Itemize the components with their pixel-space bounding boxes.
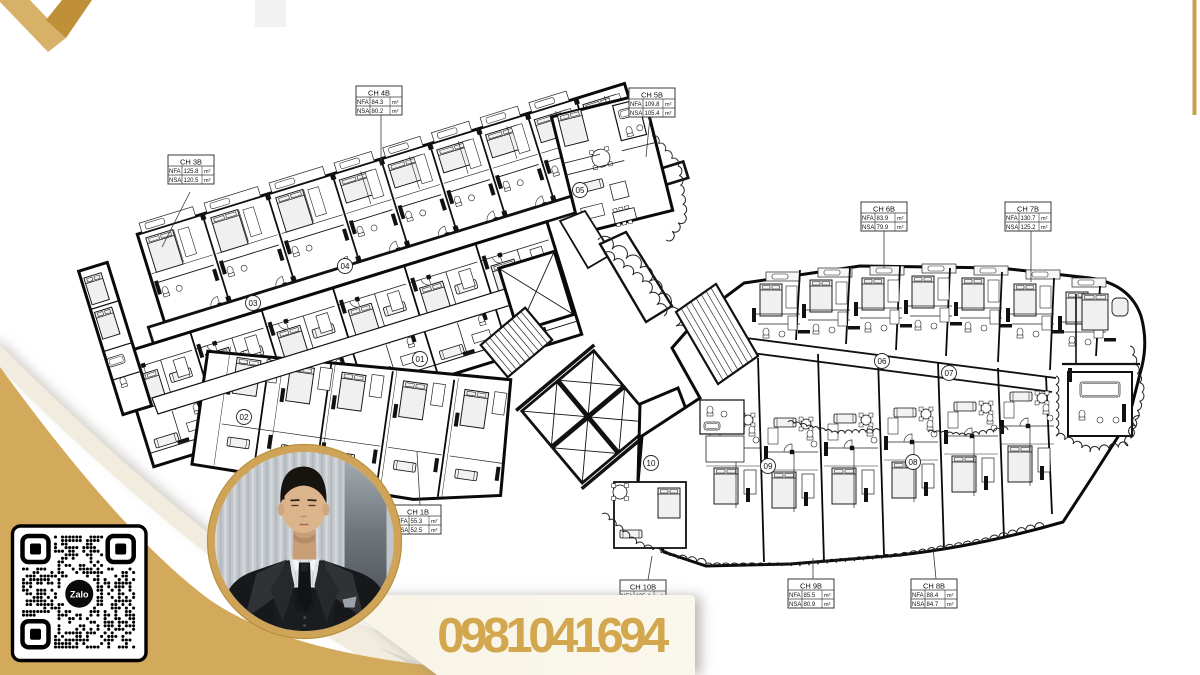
svg-text:NSA: NSA	[1006, 225, 1018, 231]
svg-text:84.7: 84.7	[927, 602, 939, 608]
svg-text:m²: m²	[665, 102, 672, 108]
svg-text:m²: m²	[431, 528, 438, 534]
svg-text:88.4: 88.4	[927, 593, 939, 599]
svg-text:08: 08	[909, 458, 918, 467]
svg-text:CH 5B: CH 5B	[641, 91, 663, 100]
svg-text:02: 02	[240, 413, 249, 422]
svg-text:NSA: NSA	[169, 178, 181, 184]
svg-text:CH 6B: CH 6B	[873, 205, 895, 214]
svg-text:m²: m²	[665, 111, 672, 117]
svg-text:09: 09	[764, 462, 773, 471]
svg-text:m²: m²	[431, 519, 438, 525]
svg-text:NSA: NSA	[789, 602, 801, 608]
svg-text:01: 01	[416, 355, 425, 364]
svg-text:85.5: 85.5	[804, 593, 816, 599]
svg-text:m²: m²	[1041, 225, 1048, 231]
svg-text:CH 1B: CH 1B	[407, 508, 429, 517]
svg-text:m²: m²	[1041, 216, 1048, 222]
svg-text:NSA: NSA	[630, 111, 642, 117]
svg-text:NFA: NFA	[912, 593, 924, 599]
svg-text:m²: m²	[392, 100, 399, 106]
svg-text:CH 10B: CH 10B	[630, 583, 656, 592]
svg-text:NFA: NFA	[630, 102, 642, 108]
svg-text:03: 03	[249, 299, 258, 308]
svg-text:52.5: 52.5	[411, 528, 423, 534]
svg-text:CH 8B: CH 8B	[923, 582, 945, 591]
svg-text:109.8: 109.8	[645, 102, 661, 108]
svg-text:NFA: NFA	[862, 216, 874, 222]
svg-text:CH 9B: CH 9B	[800, 582, 822, 591]
svg-text:NFA: NFA	[789, 593, 801, 599]
svg-text:125.2: 125.2	[1021, 225, 1037, 231]
svg-text:120.5: 120.5	[184, 178, 200, 184]
svg-text:130.7: 130.7	[1021, 216, 1037, 222]
svg-text:80.2: 80.2	[372, 109, 384, 115]
svg-text:105.4: 105.4	[645, 111, 661, 117]
svg-text:10: 10	[647, 459, 656, 468]
svg-text:0981041694: 0981041694	[437, 609, 669, 663]
svg-text:m²: m²	[897, 225, 904, 231]
svg-text:m²: m²	[897, 216, 904, 222]
svg-text:m²: m²	[824, 593, 831, 599]
svg-text:NFA: NFA	[1006, 216, 1018, 222]
svg-text:79.9: 79.9	[877, 225, 889, 231]
svg-text:06: 06	[878, 357, 887, 366]
svg-text:NSA: NSA	[862, 225, 874, 231]
svg-text:55.3: 55.3	[411, 519, 423, 525]
svg-text:CH 3B: CH 3B	[180, 158, 202, 167]
svg-text:83.9: 83.9	[877, 216, 889, 222]
svg-text:NSA: NSA	[357, 109, 369, 115]
svg-text:CH 7B: CH 7B	[1017, 205, 1039, 214]
svg-text:NFA: NFA	[357, 100, 369, 106]
svg-text:07: 07	[945, 369, 954, 378]
svg-text:m²: m²	[204, 169, 211, 175]
svg-text:m²: m²	[947, 593, 954, 599]
svg-text:Zalo: Zalo	[70, 589, 89, 599]
svg-text:80.9: 80.9	[804, 602, 816, 608]
svg-text:m²: m²	[947, 602, 954, 608]
svg-text:m²: m²	[824, 602, 831, 608]
svg-text:05: 05	[576, 186, 585, 195]
svg-text:NSA: NSA	[912, 602, 924, 608]
svg-text:125.8: 125.8	[184, 169, 200, 175]
svg-text:CH 4B: CH 4B	[368, 89, 390, 98]
svg-text:04: 04	[341, 262, 350, 271]
svg-text:84.3: 84.3	[372, 100, 384, 106]
svg-text:NFA: NFA	[169, 169, 181, 175]
svg-text:m²: m²	[392, 109, 399, 115]
svg-text:m²: m²	[204, 178, 211, 184]
